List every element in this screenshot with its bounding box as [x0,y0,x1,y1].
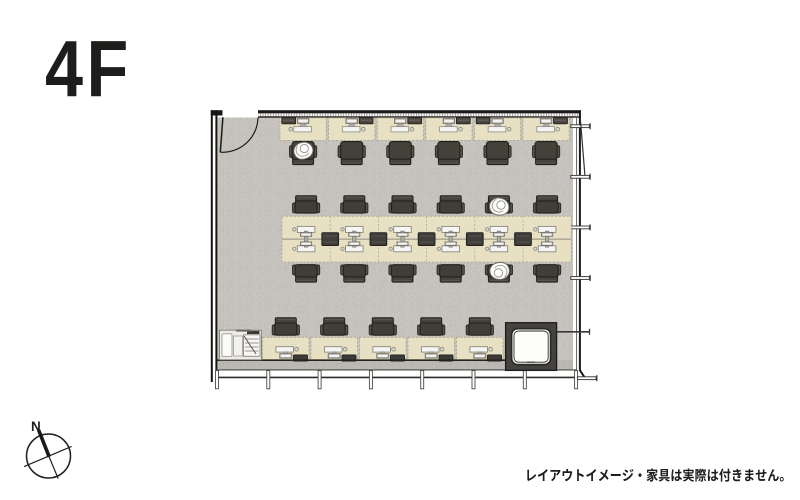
svg-text:N: N [31,419,41,434]
